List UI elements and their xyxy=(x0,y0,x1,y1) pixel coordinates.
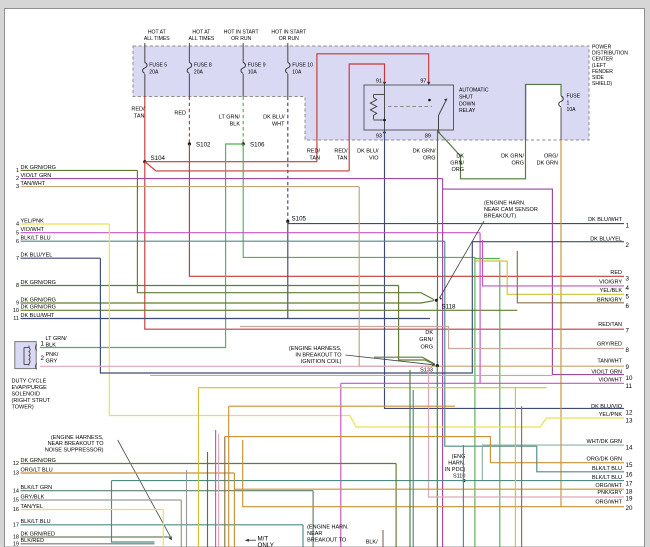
svg-text:97: 97 xyxy=(420,79,426,85)
svg-text:ALL TIMES: ALL TIMES xyxy=(144,36,170,42)
svg-text:1: 1 xyxy=(16,168,19,174)
svg-text:17: 17 xyxy=(13,522,19,528)
svg-text:BREAKOUT): BREAKOUT) xyxy=(484,214,516,220)
svg-text:ORG/WHT: ORG/WHT xyxy=(595,483,622,489)
svg-text:19: 19 xyxy=(626,496,633,503)
svg-text:DK BLU/VIO: DK BLU/VIO xyxy=(591,404,623,410)
svg-text:DK GRN/: DK GRN/ xyxy=(501,154,524,160)
svg-text:BLK/LT BLU: BLK/LT BLU xyxy=(592,466,622,472)
svg-text:15: 15 xyxy=(626,462,633,469)
svg-text:12: 12 xyxy=(626,409,633,416)
svg-text:5: 5 xyxy=(626,293,630,300)
svg-text:2: 2 xyxy=(41,355,45,362)
svg-text:HOT AT: HOT AT xyxy=(192,30,210,36)
svg-text:DK BLU/WHT: DK BLU/WHT xyxy=(588,217,623,223)
svg-text:BLK/: BLK/ xyxy=(366,540,378,546)
svg-text:AUTOMATIC: AUTOMATIC xyxy=(459,88,489,94)
svg-text:SOLENOID: SOLENOID xyxy=(12,392,40,398)
svg-text:FUSE 10: FUSE 10 xyxy=(292,63,313,69)
svg-text:VIO: VIO xyxy=(369,155,379,161)
svg-text:91: 91 xyxy=(376,79,382,85)
svg-text:RED/TAN: RED/TAN xyxy=(598,322,622,328)
svg-text:S106: S106 xyxy=(250,142,265,149)
svg-text:RED: RED xyxy=(610,270,622,276)
svg-text:10: 10 xyxy=(626,375,633,382)
svg-text:18: 18 xyxy=(13,535,19,541)
svg-text:YEL/BLK: YEL/BLK xyxy=(600,288,623,294)
svg-text:BRN/GRY: BRN/GRY xyxy=(597,298,622,304)
svg-text:10: 10 xyxy=(13,308,19,314)
svg-text:DK GRN: DK GRN xyxy=(537,160,558,166)
svg-text:DK BLU/: DK BLU/ xyxy=(357,149,379,155)
svg-text:18: 18 xyxy=(626,488,633,495)
svg-text:ORG: ORG xyxy=(420,344,433,350)
svg-text:7: 7 xyxy=(626,328,630,335)
svg-text:(RIGHT STRUT: (RIGHT STRUT xyxy=(12,398,51,404)
svg-text:2: 2 xyxy=(16,176,19,182)
svg-text:GRY/RED: GRY/RED xyxy=(597,342,622,348)
svg-text:DOWN: DOWN xyxy=(459,101,475,107)
svg-text:1: 1 xyxy=(41,341,45,348)
svg-text:IN PDC): IN PDC) xyxy=(445,467,466,473)
svg-text:TAN: TAN xyxy=(309,155,320,161)
svg-text:DISTRIBUTION: DISTRIBUTION xyxy=(592,51,628,57)
svg-text:SHUT: SHUT xyxy=(459,94,473,100)
svg-text:FENDER: FENDER xyxy=(592,69,613,75)
svg-text:14: 14 xyxy=(626,444,633,451)
svg-text:16: 16 xyxy=(13,507,19,513)
svg-text:ORG/: ORG/ xyxy=(544,154,559,160)
svg-text:NEAR CAM SENSOR: NEAR CAM SENSOR xyxy=(484,207,538,213)
svg-text:14: 14 xyxy=(13,488,19,494)
svg-text:S118: S118 xyxy=(442,304,457,311)
svg-text:EVAP/PURGE: EVAP/PURGE xyxy=(12,385,48,391)
svg-text:IN BREAKOUT TO: IN BREAKOUT TO xyxy=(295,353,342,359)
svg-text:WHT/DK GRN: WHT/DK GRN xyxy=(587,439,622,445)
svg-text:DK BLU/YEL: DK BLU/YEL xyxy=(590,237,622,243)
svg-text:HOT IN START: HOT IN START xyxy=(224,30,259,36)
svg-text:5: 5 xyxy=(16,230,19,236)
svg-text:(ENGINE HARNESS,: (ENGINE HARNESS, xyxy=(51,435,104,441)
svg-text:6: 6 xyxy=(16,239,19,245)
svg-text:RED: RED xyxy=(174,111,186,117)
svg-text:2: 2 xyxy=(626,242,630,249)
svg-text:CENTER: CENTER xyxy=(592,57,613,63)
svg-text:DK: DK xyxy=(456,154,464,160)
svg-text:BLK: BLK xyxy=(46,342,57,348)
svg-text:VIO/GRY: VIO/GRY xyxy=(599,280,622,286)
svg-text:TAN/WHT: TAN/WHT xyxy=(597,359,622,365)
svg-text:NOISE SUPPRESSOR): NOISE SUPPRESSOR) xyxy=(45,447,104,453)
svg-text:VIO/LT GRN: VIO/LT GRN xyxy=(591,370,622,376)
svg-text:10A: 10A xyxy=(292,69,302,75)
svg-text:RED/: RED/ xyxy=(131,107,145,113)
svg-text:(ENGINE HARN.: (ENGINE HARN. xyxy=(484,201,526,207)
svg-text:ORG: ORG xyxy=(423,155,436,161)
svg-text:(LEFT: (LEFT xyxy=(592,63,606,69)
svg-text:11: 11 xyxy=(626,383,633,390)
svg-text:TOWER): TOWER) xyxy=(12,405,34,411)
svg-text:OR RUN: OR RUN xyxy=(231,36,251,42)
svg-text:12: 12 xyxy=(13,461,19,467)
svg-text:TAN: TAN xyxy=(337,155,348,161)
svg-text:(ENGINE HARNESS,: (ENGINE HARNESS, xyxy=(289,346,342,352)
svg-text:NEAR BREAKOUT TO: NEAR BREAKOUT TO xyxy=(48,441,105,447)
svg-text:ORG: ORG xyxy=(511,160,524,166)
svg-text:GRY: GRY xyxy=(46,358,58,364)
svg-text:IGNITION COIL): IGNITION COIL) xyxy=(301,359,342,365)
svg-text:ORG/DK GRN: ORG/DK GRN xyxy=(587,457,622,463)
svg-text:NEAR: NEAR xyxy=(307,531,322,537)
svg-text:BLK: BLK xyxy=(230,121,241,127)
svg-text:HOT AT: HOT AT xyxy=(148,30,166,36)
svg-text:3: 3 xyxy=(626,276,630,283)
svg-text:11: 11 xyxy=(13,316,19,322)
svg-text:20A: 20A xyxy=(194,69,204,75)
svg-text:DUTY CYCLE: DUTY CYCLE xyxy=(12,379,47,385)
svg-text:RED/: RED/ xyxy=(307,149,321,155)
svg-text:16: 16 xyxy=(626,471,633,478)
svg-text:13: 13 xyxy=(13,471,19,477)
svg-text:DK: DK xyxy=(425,330,433,336)
svg-text:ORG/WHT: ORG/WHT xyxy=(595,500,622,506)
svg-text:9: 9 xyxy=(626,364,630,371)
svg-text:TAN: TAN xyxy=(134,113,145,119)
svg-text:SHIELD): SHIELD) xyxy=(592,81,612,87)
svg-text:ONLY: ONLY xyxy=(258,542,274,547)
svg-text:GRN/: GRN/ xyxy=(419,337,433,343)
svg-text:YEL/PNK: YEL/PNK xyxy=(599,412,623,418)
svg-text:19: 19 xyxy=(13,541,19,547)
svg-text:PNK/: PNK/ xyxy=(46,352,59,358)
svg-text:FUSE 5: FUSE 5 xyxy=(149,63,167,69)
svg-text:6: 6 xyxy=(626,303,630,310)
svg-text:WHT: WHT xyxy=(272,121,285,127)
svg-text:FUSE 8: FUSE 8 xyxy=(194,63,212,69)
svg-text:S133: S133 xyxy=(420,368,433,374)
svg-text:HOT IN START: HOT IN START xyxy=(271,30,306,36)
svg-text:20: 20 xyxy=(626,505,633,512)
svg-text:S104: S104 xyxy=(151,155,166,162)
svg-text:LT GRN/: LT GRN/ xyxy=(46,336,68,342)
svg-text:FUSE: FUSE xyxy=(567,94,581,100)
svg-text:17: 17 xyxy=(626,480,633,487)
svg-text:93: 93 xyxy=(376,134,382,140)
svg-text:20A: 20A xyxy=(149,69,159,75)
svg-text:GRN/: GRN/ xyxy=(450,160,464,166)
svg-text:10A: 10A xyxy=(248,69,258,75)
svg-text:RELAY: RELAY xyxy=(459,108,476,114)
svg-text:10A: 10A xyxy=(567,107,577,113)
svg-text:15: 15 xyxy=(13,498,19,504)
svg-text:FUSE 9: FUSE 9 xyxy=(248,63,266,69)
svg-text:SIDE: SIDE xyxy=(592,75,604,81)
svg-text:4: 4 xyxy=(626,285,630,292)
svg-text:3: 3 xyxy=(16,184,19,190)
svg-text:RED/: RED/ xyxy=(334,149,348,155)
svg-text:S105: S105 xyxy=(292,216,307,223)
svg-text:OR RUN: OR RUN xyxy=(279,36,299,42)
svg-text:(ENGINE HARN.: (ENGINE HARN. xyxy=(307,525,349,531)
svg-text:BREAKOUT TO: BREAKOUT TO xyxy=(307,538,347,544)
svg-text:7: 7 xyxy=(16,256,19,262)
svg-text:VIO/WHT: VIO/WHT xyxy=(598,378,622,384)
svg-text:ORG: ORG xyxy=(451,167,464,173)
svg-text:89: 89 xyxy=(425,134,431,140)
svg-text:8: 8 xyxy=(626,347,630,354)
svg-text:PNK/GRY: PNK/GRY xyxy=(597,490,622,496)
svg-text:POWER: POWER xyxy=(592,45,612,51)
svg-text:8: 8 xyxy=(16,283,19,289)
svg-text:S102: S102 xyxy=(196,142,211,149)
svg-text:13: 13 xyxy=(626,417,633,424)
svg-text:ALL TIMES: ALL TIMES xyxy=(189,36,215,42)
svg-text:DK BLU/: DK BLU/ xyxy=(263,115,285,121)
svg-text:1: 1 xyxy=(626,222,630,229)
svg-text:LT GRN/: LT GRN/ xyxy=(219,115,241,121)
svg-text:DK GRN/: DK GRN/ xyxy=(413,149,436,155)
svg-text:1: 1 xyxy=(567,100,570,106)
svg-text:4: 4 xyxy=(16,222,19,228)
svg-text:9: 9 xyxy=(16,301,19,307)
